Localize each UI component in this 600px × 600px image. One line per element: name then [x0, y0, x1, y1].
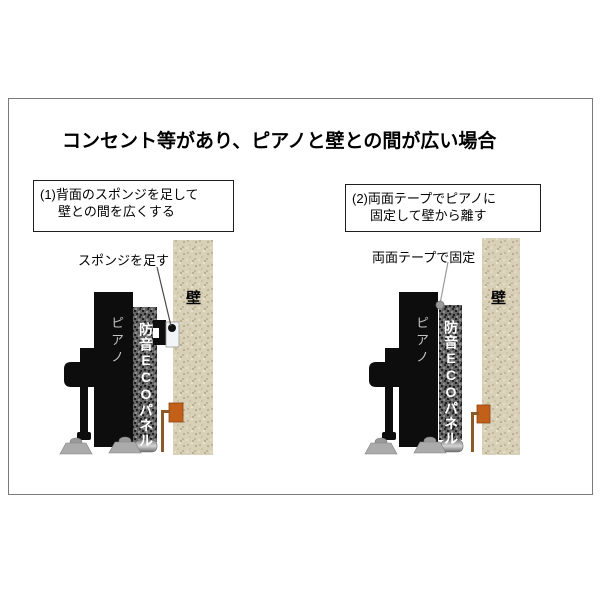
- pointer-line: [157, 267, 171, 326]
- panel-label: 防音ECOパネル: [441, 320, 461, 446]
- instruction-1-line-2: 壁との間を広くする: [40, 203, 227, 220]
- diagram-add-sponge: [30, 238, 290, 465]
- piano-label: ピアノ: [107, 316, 126, 367]
- sponge-assembly: [153, 320, 179, 347]
- panel-label: 防音ECOパネル: [136, 322, 156, 448]
- wall-label: 壁: [186, 287, 201, 308]
- wall-label: 壁: [491, 287, 506, 308]
- power-outlet: [169, 403, 183, 422]
- instruction-box-1: (1)背面のスポンジを足して 壁との間を広くする: [33, 180, 234, 232]
- diagram-tape-fix: [335, 238, 595, 465]
- wall: [173, 240, 213, 455]
- instruction-2-line-2: 固定して壁から離す: [352, 207, 534, 224]
- page-title: コンセント等があり、ピアノと壁との間が広い場合: [62, 126, 496, 153]
- instruction-2-line-1: (2)両面テープでピアノに: [352, 190, 534, 207]
- caster-cup: [60, 438, 92, 454]
- pointer-line: [440, 262, 448, 304]
- sponge-dot: [168, 324, 176, 332]
- page: コンセント等があり、ピアノと壁との間が広い場合 (1)背面のスポンジを足して 壁…: [0, 0, 600, 600]
- instruction-1-line-1: (1)背面のスポンジを足して: [40, 186, 227, 203]
- piano-label: ピアノ: [412, 316, 431, 367]
- instruction-box-2: (2)両面テープでピアノに 固定して壁から離す: [345, 184, 541, 232]
- tape-dot: [436, 301, 444, 309]
- caster-cup: [365, 438, 397, 454]
